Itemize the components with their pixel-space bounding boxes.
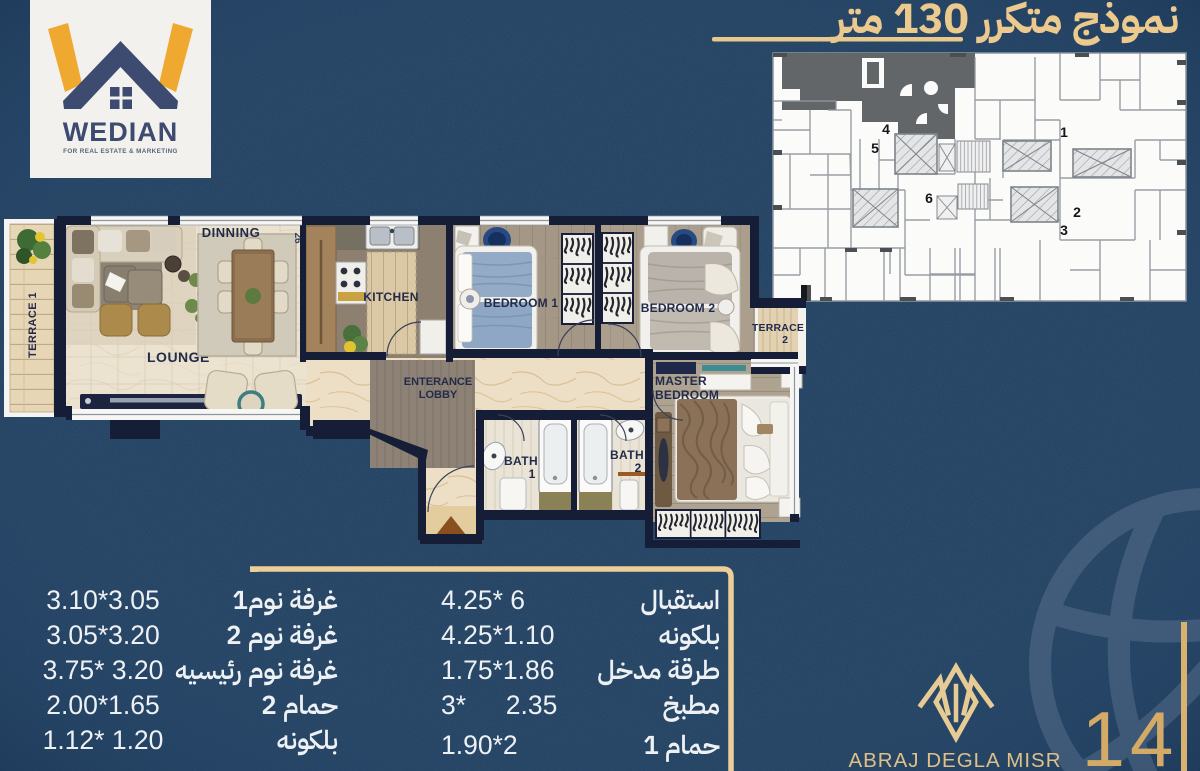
svg-text:4: 4 [882,121,890,137]
svg-text:1.90*2: 1.90*2 [441,730,518,760]
svg-text:LOBBY: LOBBY [419,389,458,401]
svg-text:2: 2 [635,461,642,475]
svg-text:ENTERANCE: ENTERANCE [404,376,472,388]
svg-text:BEDROOM: BEDROOM [655,388,719,402]
svg-text:2: 2 [782,334,788,346]
svg-text:3.75* 3.20: 3.75* 3.20 [43,655,164,685]
svg-text:MASTER: MASTER [655,374,707,388]
svg-text:2.00*1.65: 2.00*1.65 [46,690,159,720]
svg-text:FOR REAL ESTATE & MARKETING: FOR REAL ESTATE & MARKETING [63,148,178,155]
svg-text:3: 3 [1060,222,1068,238]
svg-text:KITCHEN: KITCHEN [363,290,418,304]
svg-text:TERRACE: TERRACE [752,322,804,334]
svg-text:BEDROOM 2: BEDROOM 2 [641,301,716,315]
svg-text:6: 6 [925,190,933,206]
svg-text:2: 2 [1073,204,1081,220]
svg-text:1: 1 [1060,124,1068,140]
svg-text:1.75*1.86: 1.75*1.86 [441,655,554,685]
svg-text:14: 14 [1082,695,1179,771]
svg-text:WEDIAN: WEDIAN [63,117,179,147]
svg-text:5: 5 [871,140,879,156]
svg-text:BEDROOM 1: BEDROOM 1 [484,296,559,310]
svg-text:3.10*3.05: 3.10*3.05 [46,585,159,615]
svg-text:1: 1 [529,467,536,481]
svg-text:ABRAJ DEGLA MISR: ABRAJ DEGLA MISR [848,749,1061,771]
svg-text:TERRACE 1: TERRACE 1 [27,292,39,358]
svg-text:3.05*3.20: 3.05*3.20 [46,620,159,650]
svg-text:4.25*1.10: 4.25*1.10 [441,620,554,650]
svg-text:3* 2.35: 3* 2.35 [441,690,557,720]
svg-text:DINNING: DINNING [202,225,260,240]
svg-text:4.25* 6: 4.25* 6 [441,585,525,615]
svg-text:BATH: BATH [504,454,538,468]
svg-text:1.12* 1.20: 1.12* 1.20 [43,725,164,755]
svg-text:BATH: BATH [610,448,644,462]
